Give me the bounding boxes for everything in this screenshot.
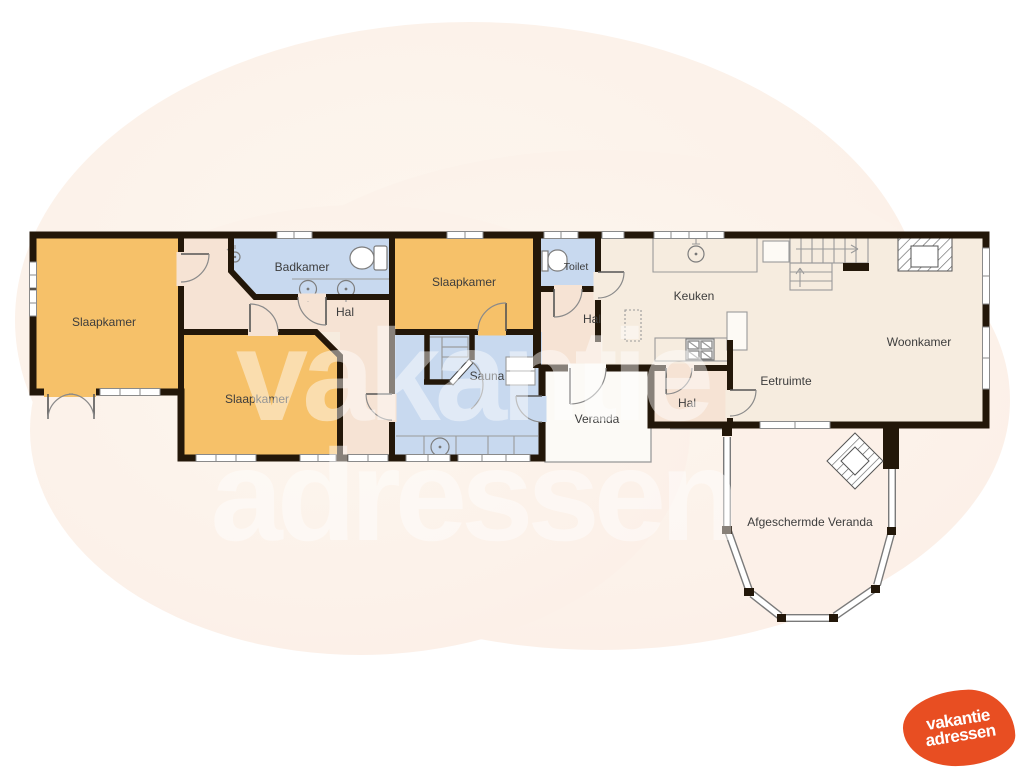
floorplan-svg: Slaapkamer Badkamer Hal Slaapkamer Slaap… — [0, 0, 1024, 768]
room-label-woonkamer: Woonkamer — [887, 335, 951, 349]
floorplan-page: Slaapkamer Badkamer Hal Slaapkamer Slaap… — [0, 0, 1024, 768]
watermark-text: vakantie adressen — [211, 302, 734, 568]
room-label-badkamer: Badkamer — [275, 260, 330, 274]
room-label-toilet: Toilet — [564, 261, 589, 273]
toilet-icon — [350, 246, 387, 270]
fireplace-icon — [898, 238, 952, 271]
watermark-line2: adressen — [211, 422, 734, 568]
room-slaapkamer-left — [33, 235, 181, 392]
room-label-keuken: Keuken — [674, 289, 715, 303]
room-label-afgeschermde-veranda: Afgeschermde Veranda — [747, 515, 873, 529]
room-label-slaapkamer-right: Slaapkamer — [432, 275, 496, 289]
room-label-slaapkamer-left: Slaapkamer — [72, 315, 136, 329]
brand-logo-text: vakantie adressen — [922, 707, 997, 750]
room-label-eetruimte: Eetruimte — [760, 374, 812, 388]
